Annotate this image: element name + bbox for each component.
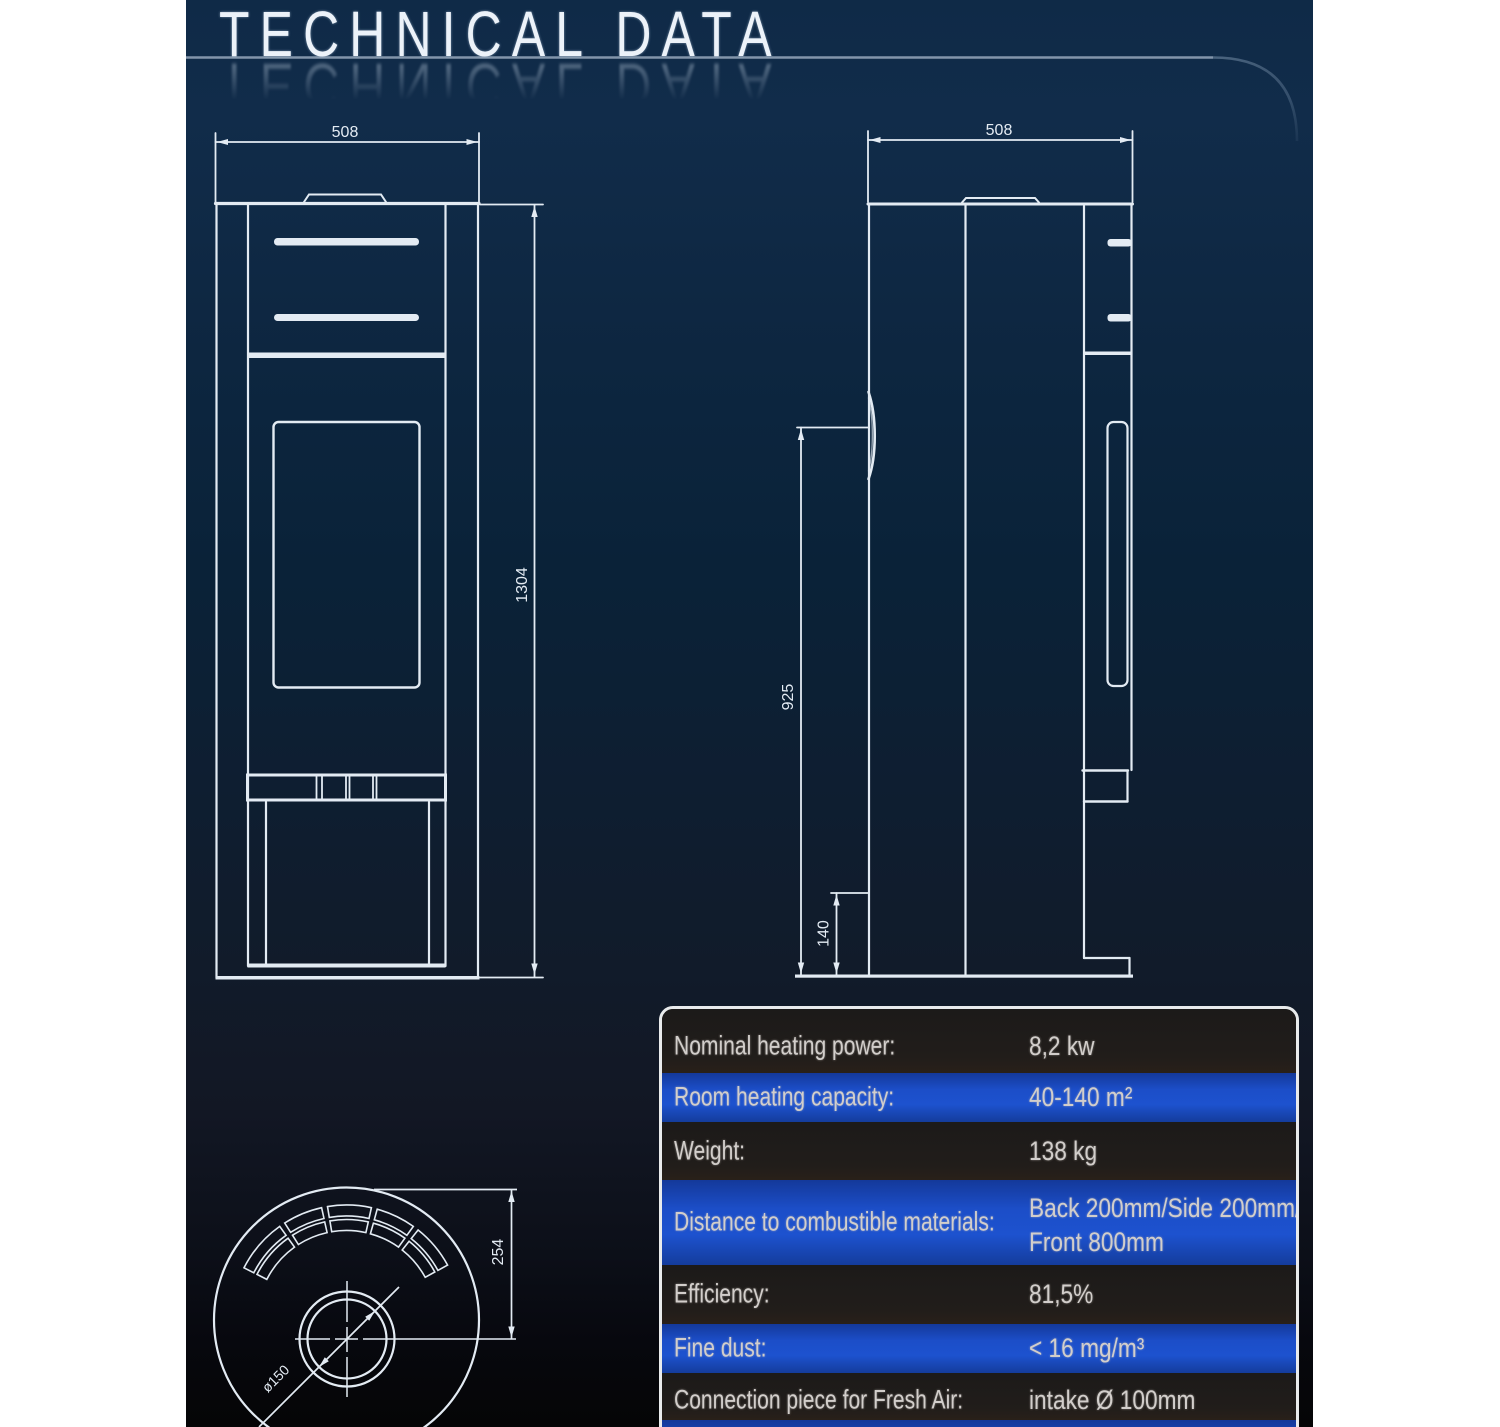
svg-text:1304: 1304 — [514, 567, 531, 603]
svg-text:508: 508 — [332, 124, 359, 141]
svg-text:254: 254 — [490, 1239, 507, 1266]
svg-text:140: 140 — [816, 920, 833, 947]
svg-text:508: 508 — [986, 122, 1013, 139]
svg-text:ø150: ø150 — [259, 1361, 293, 1395]
svg-text:925: 925 — [780, 684, 797, 711]
